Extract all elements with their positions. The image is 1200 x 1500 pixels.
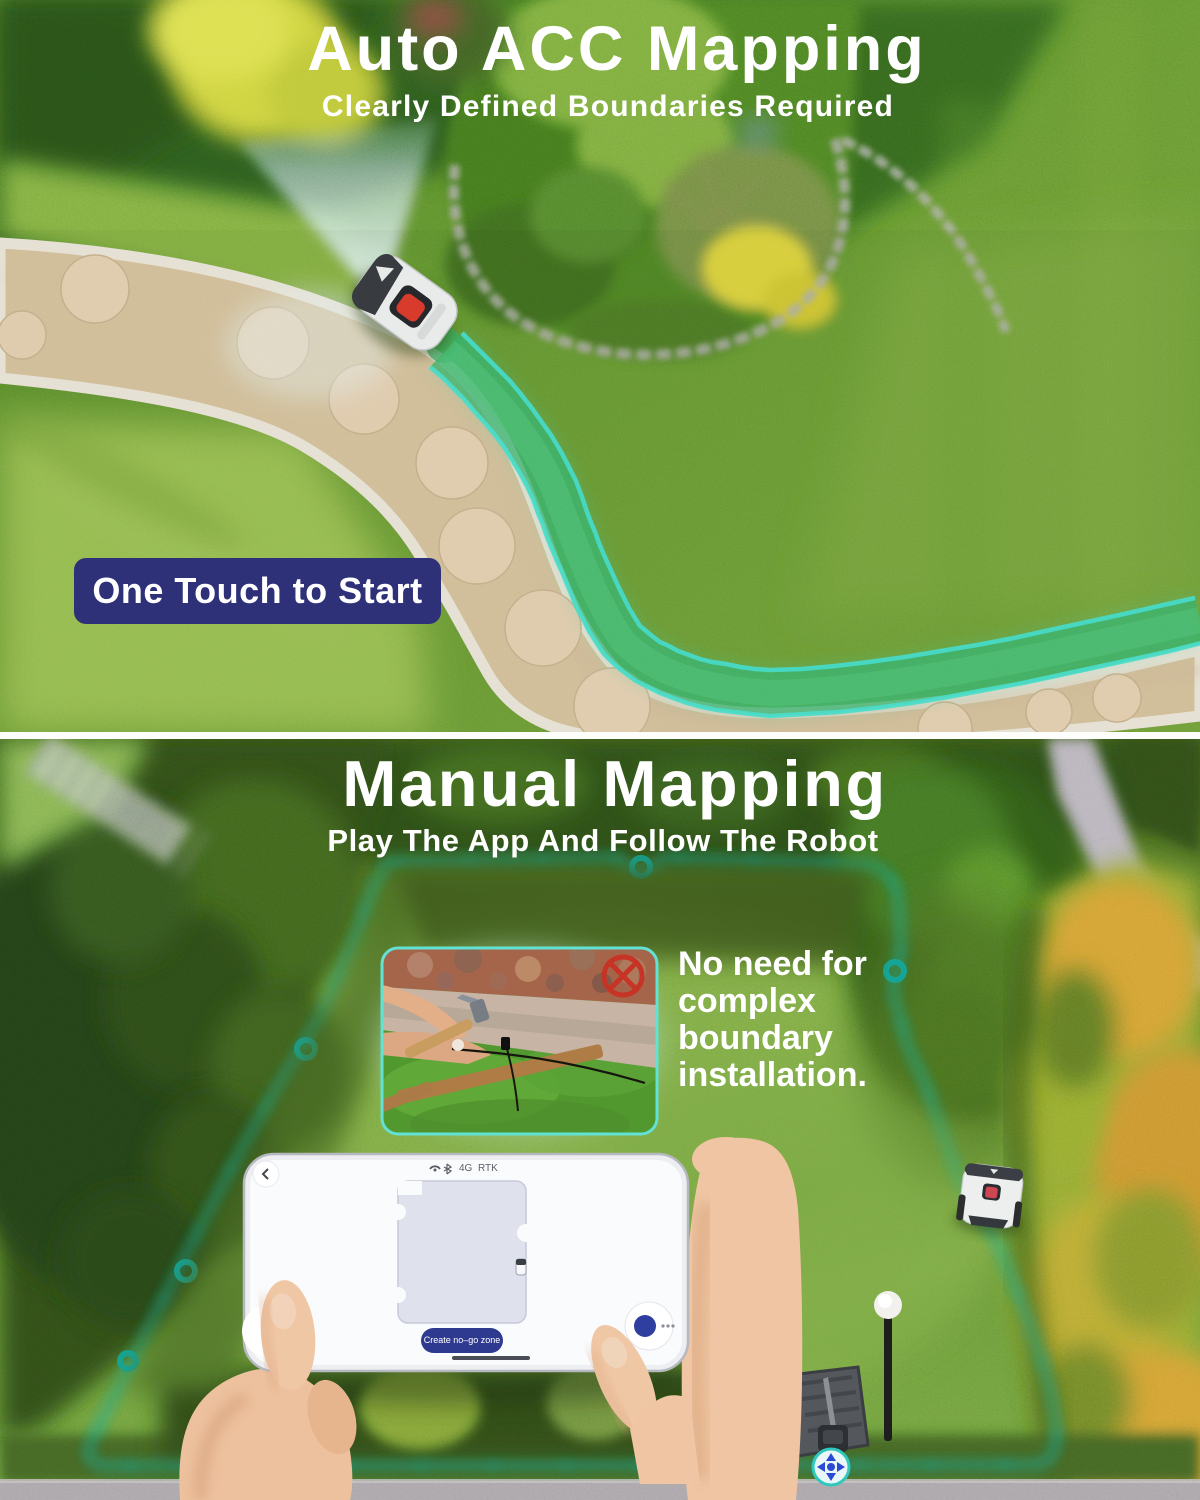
svg-text:Create no–go zone: Create no–go zone bbox=[424, 1335, 501, 1345]
svg-text:RTK: RTK bbox=[478, 1163, 498, 1174]
svg-text:4G: 4G bbox=[459, 1163, 473, 1174]
